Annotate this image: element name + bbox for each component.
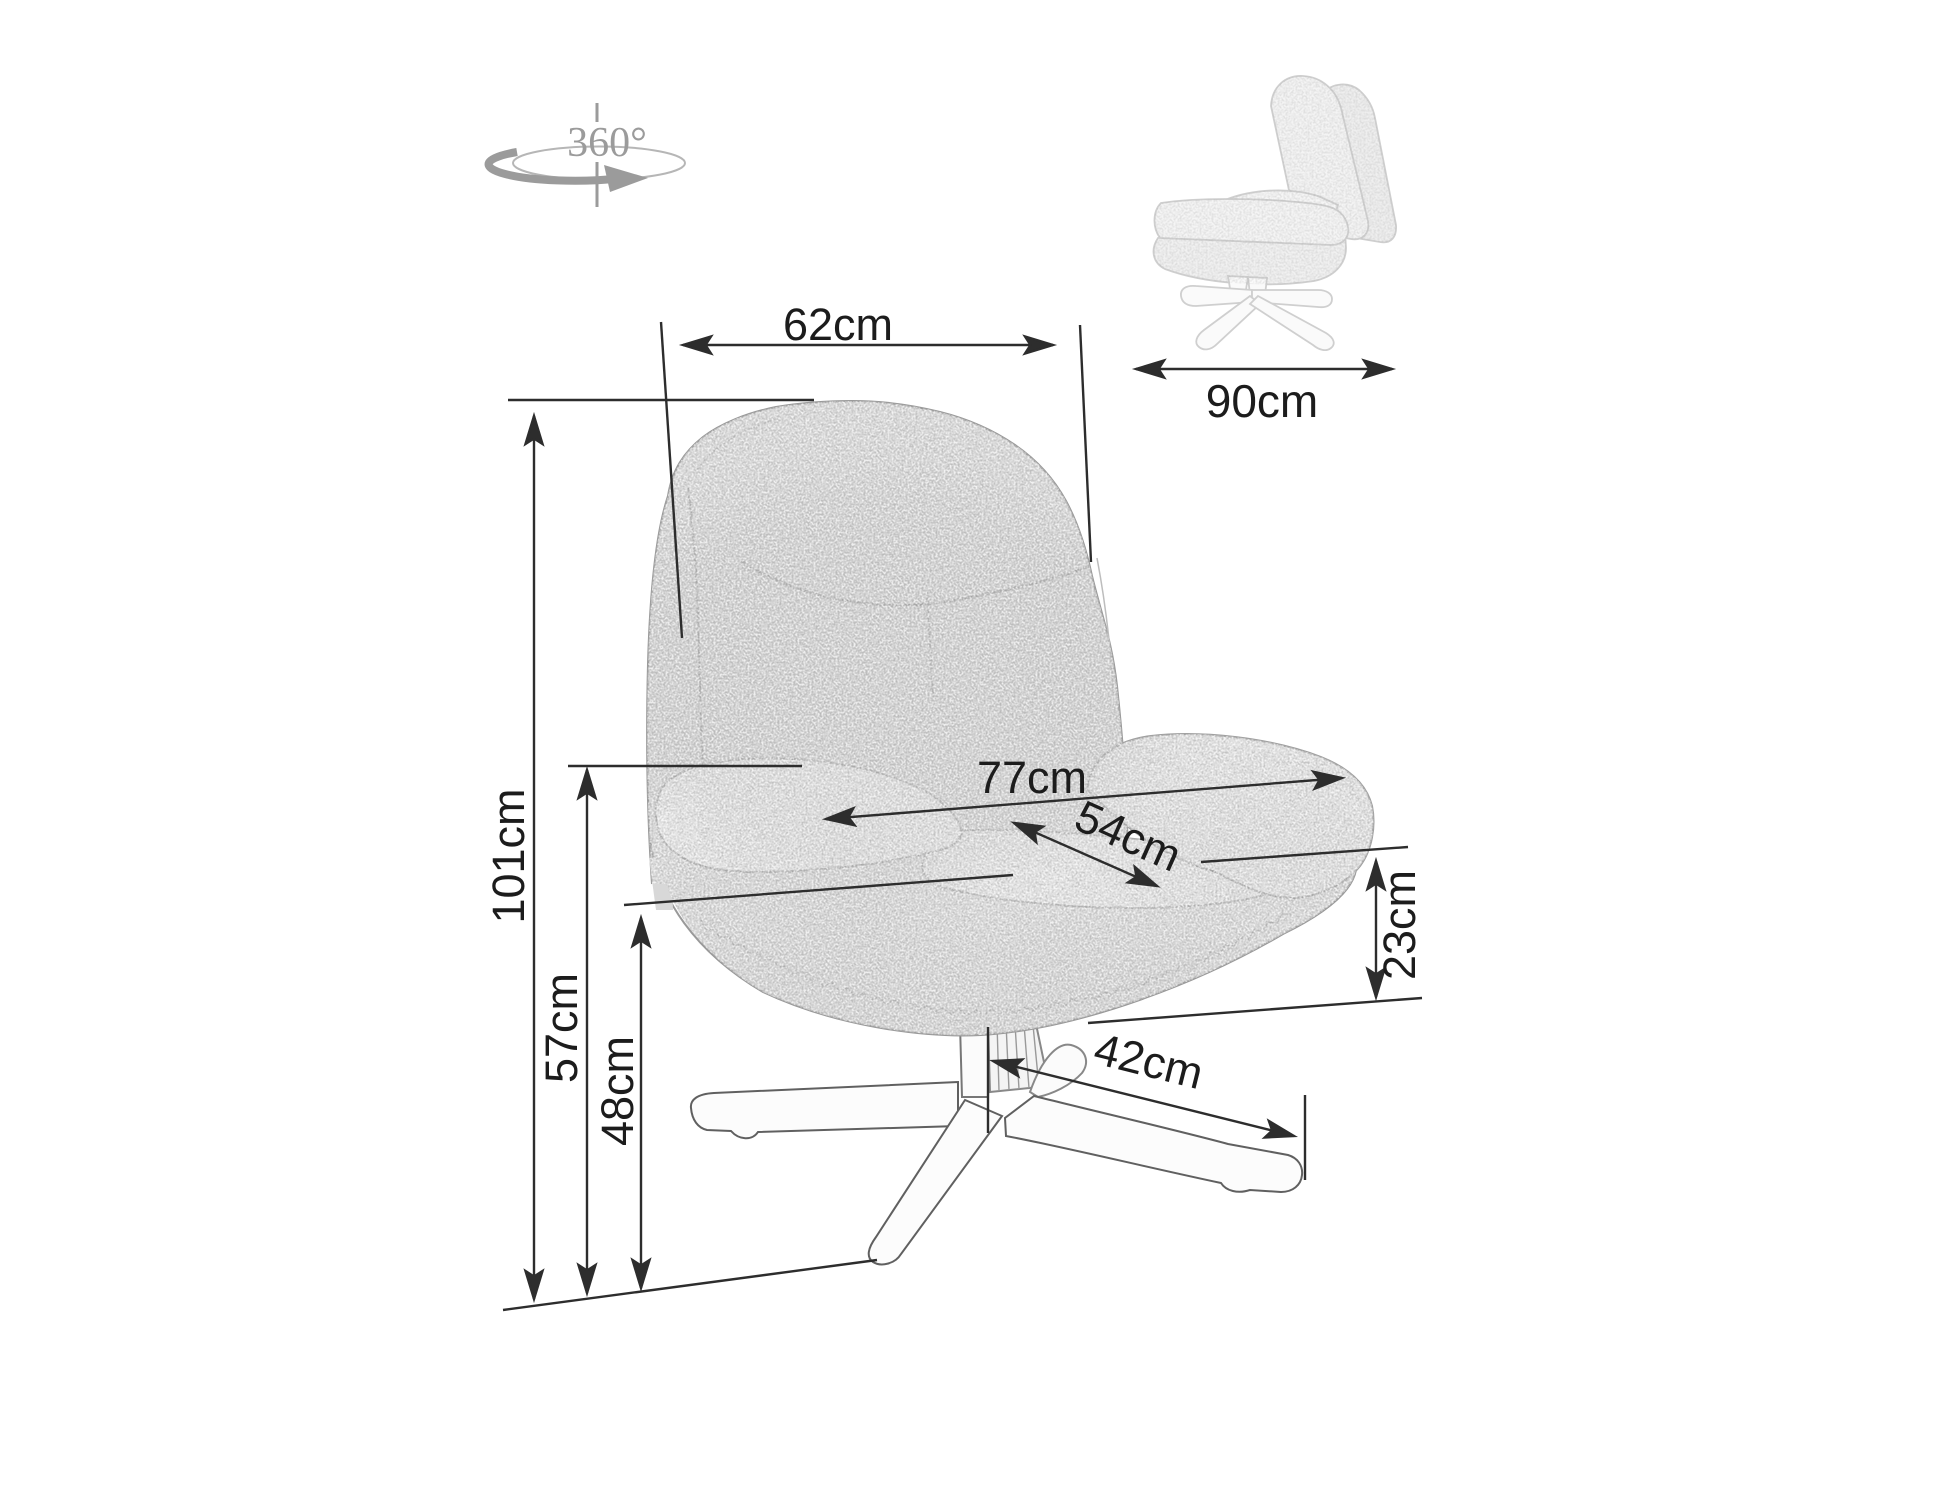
svg-text:77cm: 77cm	[977, 752, 1087, 803]
svg-text:48cm: 48cm	[592, 1036, 643, 1146]
svg-text:23cm: 23cm	[1374, 870, 1425, 980]
svg-text:57cm: 57cm	[536, 973, 587, 1083]
svg-text:62cm: 62cm	[783, 299, 893, 350]
svg-text:360°: 360°	[567, 120, 647, 166]
svg-text:90cm: 90cm	[1206, 375, 1318, 427]
svg-text:101cm: 101cm	[483, 788, 534, 923]
